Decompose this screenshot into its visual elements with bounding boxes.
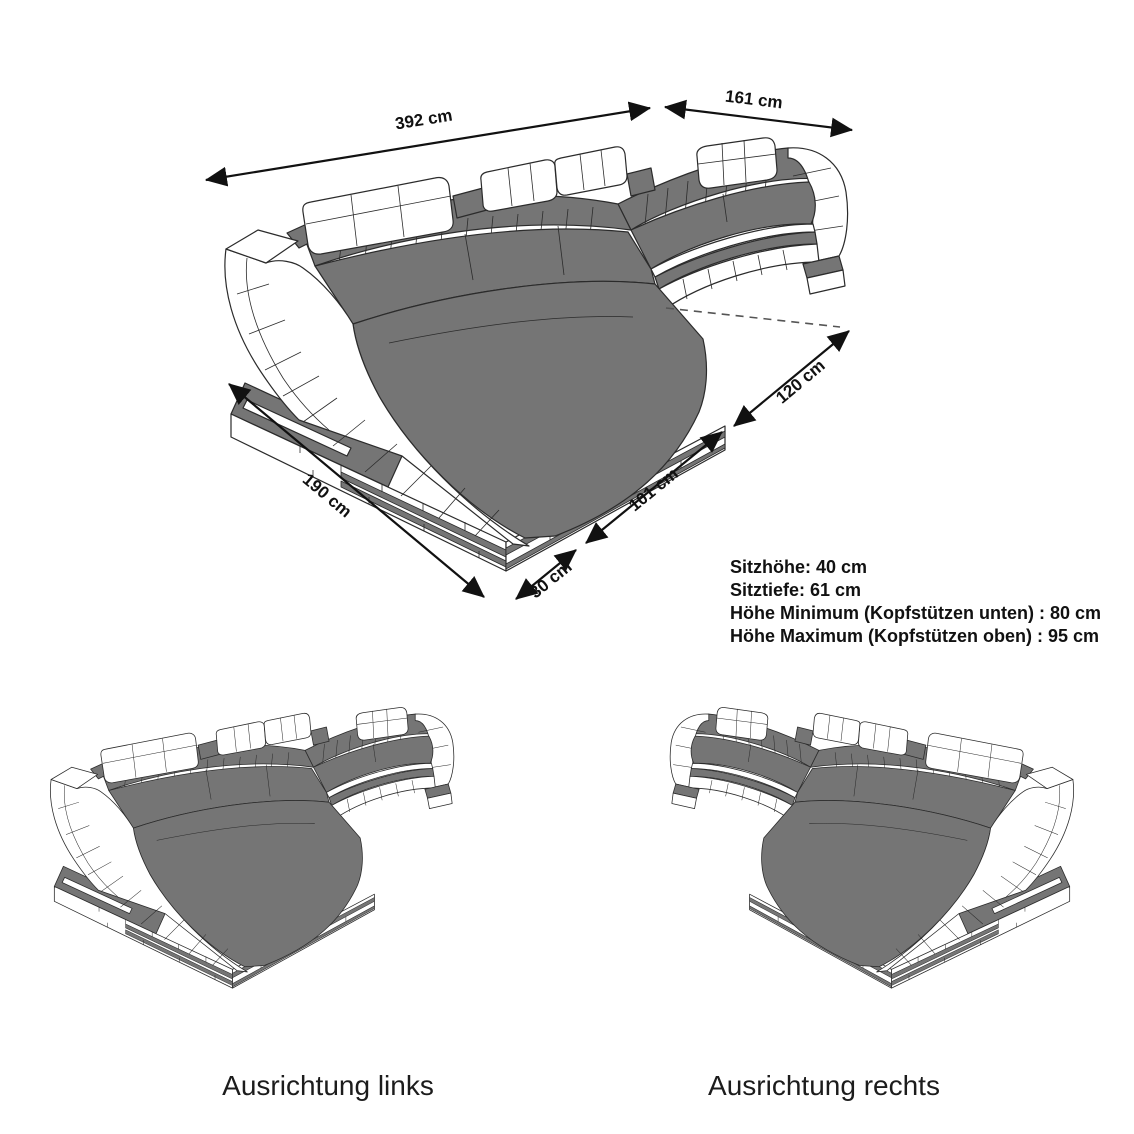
sofa-variant-links [36, 705, 464, 1016]
spec-sitztiefe: Sitztiefe: 61 cm [730, 579, 1101, 602]
spec-hoehe-maximum: Höhe Maximum (Kopfstützen oben) : 95 cm [730, 625, 1101, 648]
specs-text-block: Sitzhöhe: 40 cm Sitztiefe: 61 cm Höhe Mi… [730, 556, 1101, 648]
dimension-label-back-width: 392 cm [394, 106, 454, 135]
dimension-label-right-back-width: 161 cm [724, 87, 784, 114]
sofa-isometric-main [203, 134, 863, 614]
spec-hoehe-minimum: Höhe Minimum (Kopfstützen unten) : 80 cm [730, 602, 1101, 625]
sofa-dimension-diagram: 392 cm 161 cm 120 cm 101 cm 30 cm 190 cm… [0, 0, 1134, 1134]
spec-sitzhoehe: Sitzhöhe: 40 cm [730, 556, 1101, 579]
variant-label-rechts: Ausrichtung rechts [708, 1070, 940, 1102]
sofa-variant-rechts [660, 705, 1088, 1016]
variant-label-links: Ausrichtung links [222, 1070, 434, 1102]
